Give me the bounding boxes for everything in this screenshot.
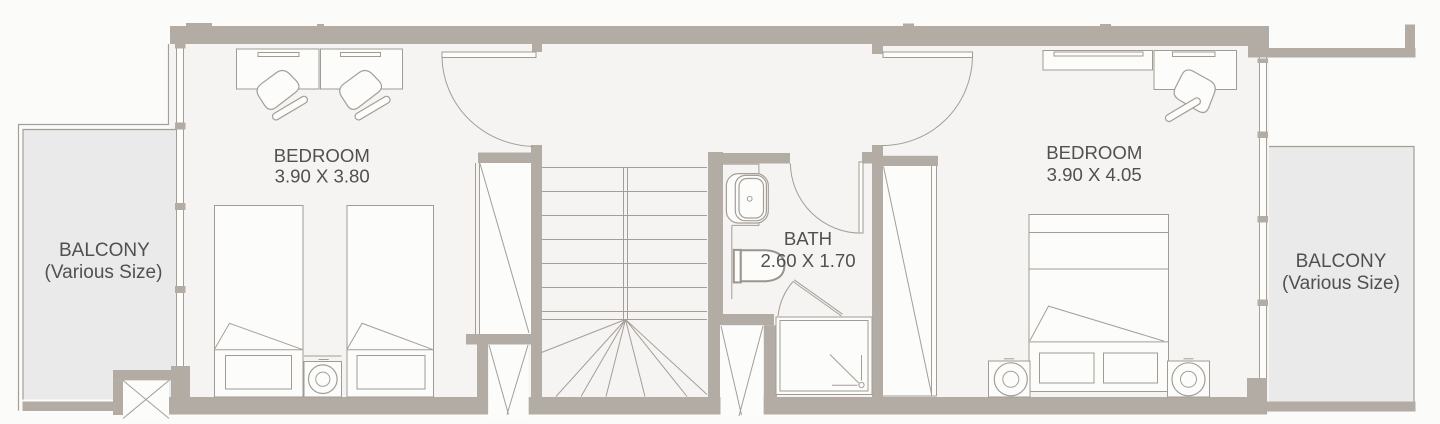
svg-text:2.60 X 1.70: 2.60 X 1.70 bbox=[760, 250, 855, 271]
svg-text:(Various Size): (Various Size) bbox=[45, 262, 163, 283]
svg-text:BATH: BATH bbox=[784, 228, 832, 249]
svg-text:BALCONY: BALCONY bbox=[1296, 251, 1387, 272]
svg-text:BEDROOM: BEDROOM bbox=[1046, 142, 1142, 163]
svg-text:3.90 X 3.80: 3.90 X 3.80 bbox=[275, 165, 370, 186]
svg-text:BALCONY: BALCONY bbox=[59, 240, 150, 261]
svg-text:BEDROOM: BEDROOM bbox=[274, 145, 370, 166]
svg-text:(Various Size): (Various Size) bbox=[1282, 273, 1400, 294]
svg-text:3.90 X 4.05: 3.90 X 4.05 bbox=[1047, 164, 1142, 185]
